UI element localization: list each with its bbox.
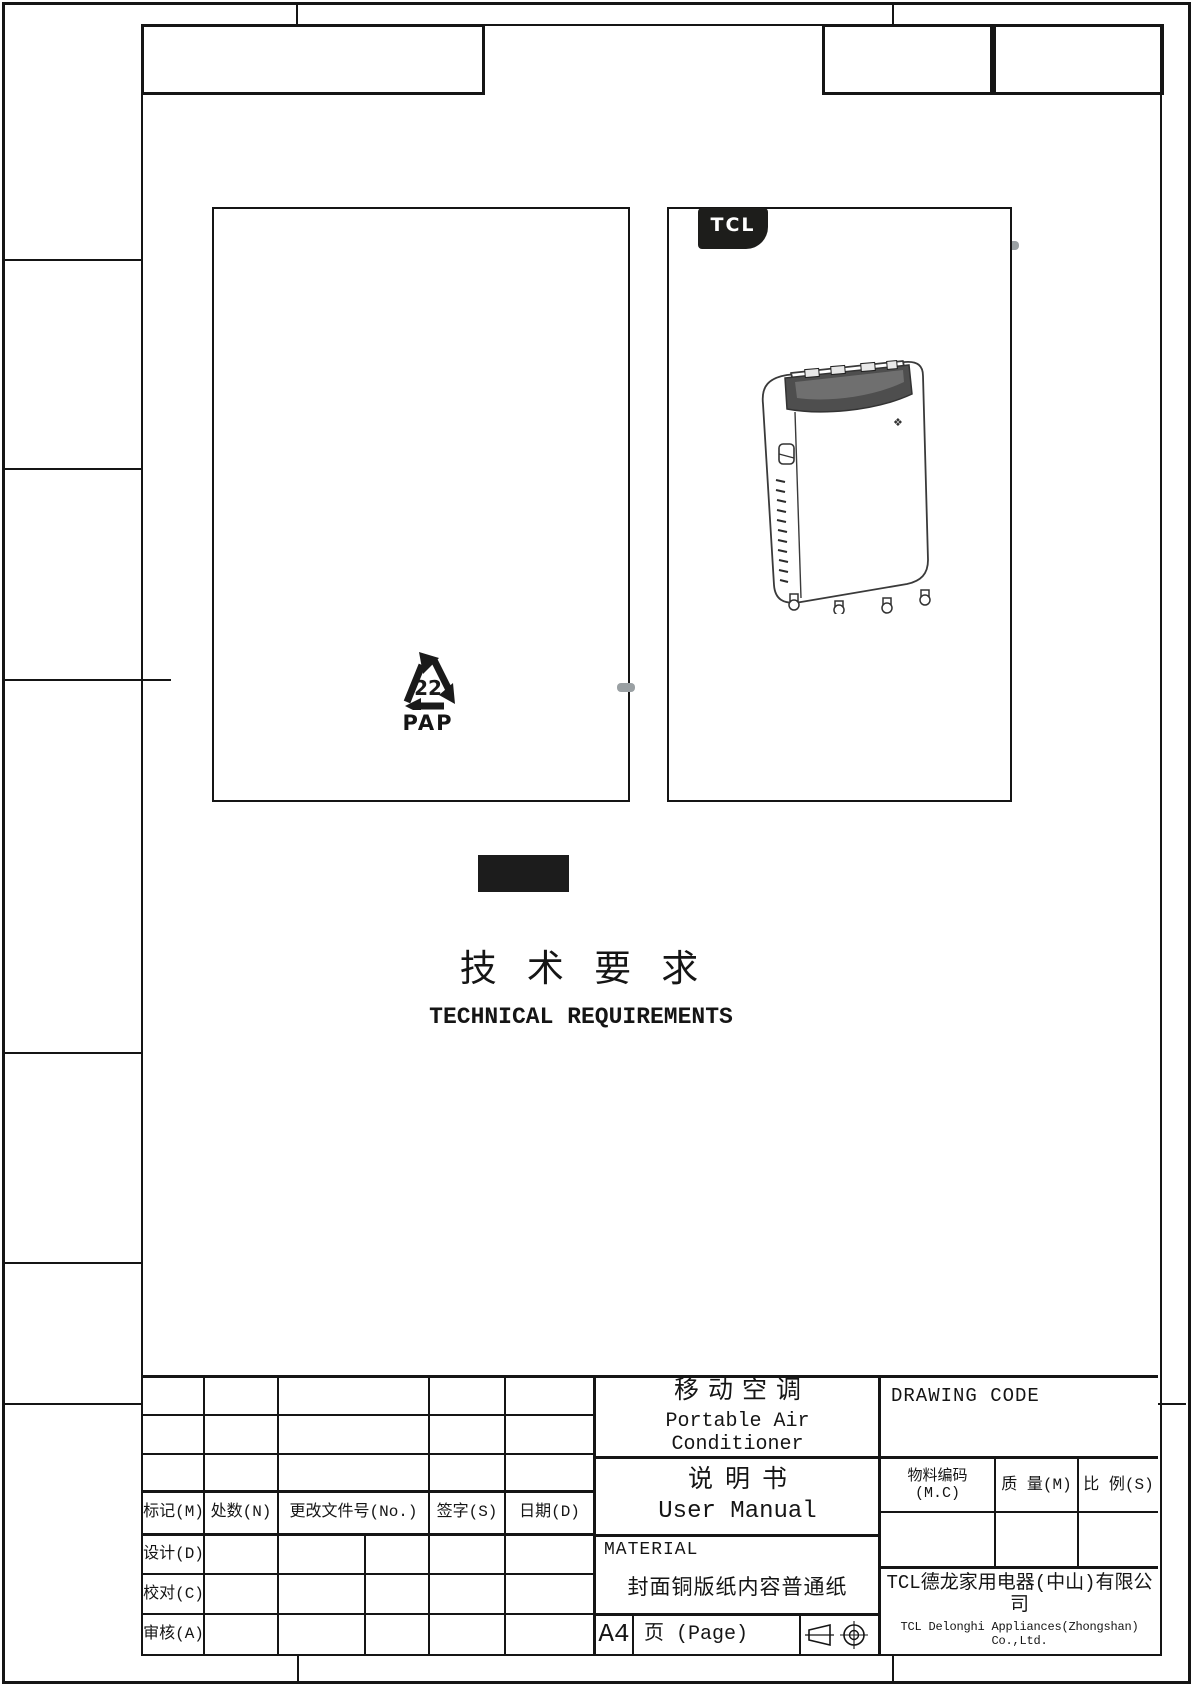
doc-type-cell: 说明书 User Manual bbox=[596, 1459, 879, 1534]
zone-tick-left-4 bbox=[3, 1262, 142, 1264]
page-label-cell: 页 (Page) bbox=[634, 1615, 799, 1655]
zone-tick-left-2 bbox=[3, 468, 142, 470]
recycle-triangle-icon: 22 bbox=[395, 650, 461, 710]
ac-brand-mark: ❖ bbox=[893, 416, 903, 429]
drawing-code-cell: DRAWING CODE bbox=[881, 1378, 1158, 1456]
top-header-cell-left bbox=[141, 24, 485, 95]
air-conditioner-illustration: ❖ bbox=[735, 352, 940, 614]
section-title-en: TECHNICAL REQUIREMENTS bbox=[381, 1000, 781, 1034]
zone-tick-left-5 bbox=[3, 1403, 142, 1405]
signoff-audit: 审核(A) bbox=[143, 1615, 204, 1654]
zone-tick-left-3 bbox=[3, 1052, 142, 1054]
scale-label-cell: 比 例(S) bbox=[1079, 1459, 1158, 1511]
product-name-cell: 移动空调 Portable Air Conditioner bbox=[596, 1378, 879, 1456]
zone-tick-bottom-2 bbox=[892, 1655, 894, 1681]
signoff-design: 设计(D) bbox=[143, 1535, 204, 1574]
right-hline-2 bbox=[881, 1511, 1158, 1513]
zone-tick-bottom-1 bbox=[297, 1655, 299, 1681]
rev-header-mark: 标记(M) bbox=[143, 1492, 204, 1533]
rev-header-date: 日期(D) bbox=[505, 1492, 594, 1533]
rev-header-count: 处数(N) bbox=[204, 1492, 278, 1533]
rev-hline-6 bbox=[143, 1613, 593, 1615]
top-header-cell-mid bbox=[822, 24, 996, 95]
recycle-material-label: PAP bbox=[402, 711, 453, 735]
paper-size-cell: A4 bbox=[596, 1615, 632, 1655]
zone-tick-top-1 bbox=[296, 3, 298, 25]
rev-hline-4 bbox=[143, 1533, 593, 1536]
rev-vline-5 bbox=[364, 1533, 366, 1655]
section-title-cn: 技 术 要 求 bbox=[381, 946, 781, 998]
material-label: MATERIAL bbox=[604, 1540, 698, 1560]
mass-label-cell: 质 量(M) bbox=[996, 1459, 1077, 1511]
recycle-code-glyph: 22 bbox=[414, 676, 442, 700]
ac-button-4 bbox=[887, 361, 898, 370]
ac-button-1 bbox=[805, 368, 820, 377]
drawing-sheet: 22 PAP TCL ❖ bbox=[0, 0, 1191, 1684]
tcl-logo-text: TCL bbox=[710, 215, 755, 237]
rev-header-changefile: 更改文件号(No.) bbox=[278, 1492, 429, 1533]
mc-label-cell: 物料编码 (M.C) bbox=[881, 1459, 994, 1511]
recycle-pap-icon: 22 PAP bbox=[388, 650, 468, 736]
zone-tick-top-2 bbox=[892, 3, 894, 25]
company-cell: TCL德龙家用电器(中山)有限公司 TCL Delonghi Appliance… bbox=[881, 1569, 1158, 1653]
zone-tick-left-1 bbox=[3, 259, 142, 261]
rev-header-signature: 签字(S) bbox=[429, 1492, 505, 1533]
redacted-model-block bbox=[478, 855, 569, 892]
tcl-logo: TCL bbox=[698, 208, 768, 249]
company-name-en: TCL Delonghi Appliances(Zhongshan) Co.,L… bbox=[881, 1621, 1158, 1649]
rev-hline-5 bbox=[143, 1573, 593, 1575]
rev-hline-1 bbox=[143, 1414, 593, 1416]
product-name-cn: 移动空调 bbox=[665, 1378, 810, 1407]
zone-tick-left-center bbox=[3, 679, 171, 681]
material-cell: MATERIAL 封面铜版纸内容普通纸 bbox=[596, 1537, 879, 1613]
doc-type-cn: 说明书 bbox=[676, 1467, 799, 1496]
rev-hline-2 bbox=[143, 1453, 593, 1455]
projection-symbol-cell bbox=[801, 1615, 879, 1655]
company-name-cn: TCL德龙家用电器(中山)有限公司 bbox=[881, 1573, 1158, 1617]
zone-tick-right-1 bbox=[1158, 1403, 1186, 1405]
product-name-en: Portable Air Conditioner bbox=[596, 1410, 879, 1456]
first-angle-projection-icon bbox=[805, 1621, 875, 1649]
doc-type-en: User Manual bbox=[658, 1498, 816, 1526]
binding-mark-left-page bbox=[617, 683, 635, 692]
top-header-cell-right bbox=[990, 24, 1164, 95]
signoff-check: 校对(C) bbox=[143, 1575, 204, 1614]
ac-button-3 bbox=[861, 362, 876, 371]
ac-button-2 bbox=[831, 365, 846, 374]
material-value: 封面铜版纸内容普通纸 bbox=[596, 1571, 879, 1601]
